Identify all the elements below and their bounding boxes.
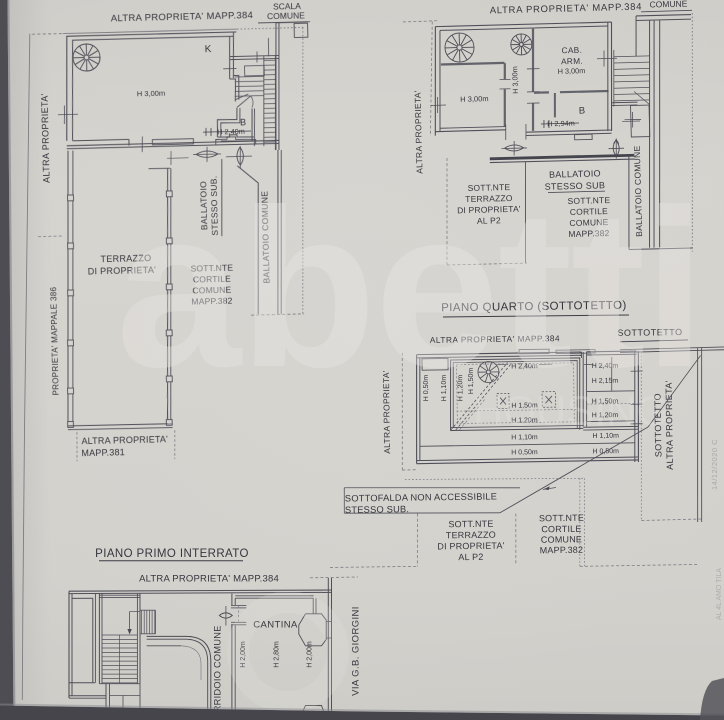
svg-text:ALTRA PROPRIETA': ALTRA PROPRIETA' [81,434,168,446]
svg-text:CAB.: CAB. [561,45,582,56]
svg-text:MAPP.382: MAPP.382 [540,545,584,556]
svg-text:14/12/2020 C: 14/12/2020 C [710,439,719,490]
svg-text:COMUNE: COMUNE [267,11,305,22]
svg-text:SOTT.NTE: SOTT.NTE [448,519,493,530]
svg-text:AL P2: AL P2 [458,552,483,562]
svg-text:ALTRA PROPRIETA' MAPP.384: ALTRA PROPRIETA' MAPP.384 [139,574,279,585]
svg-text:H 1,10m: H 1,10m [511,434,538,441]
svg-text:PIANO PRIMO INTERRATO: PIANO PRIMO INTERRATO [95,548,249,560]
svg-text:H 3,00m: H 3,00m [137,89,166,99]
svg-text:MAPP.381: MAPP.381 [81,447,125,458]
svg-text:COMUNE: COMUNE [649,0,687,9]
svg-text:CORTILE: CORTILE [541,524,581,535]
svg-text:H 3,00m: H 3,00m [510,66,520,94]
svg-text:COMUNE: COMUNE [541,534,582,545]
svg-text:H 3,00m: H 3,00m [558,66,586,76]
svg-text:ALTRA PROPRIETA': ALTRA PROPRIETA' [39,93,51,183]
svg-text:DI PROPRIETA': DI PROPRIETA' [437,541,504,552]
svg-text:SOTTOFALDA NON ACCESSIBILE: SOTTOFALDA NON ACCESSIBILE [345,491,497,503]
svg-text:abetti: abetti [116,162,704,414]
svg-text:H 2,80m: H 2,80m [273,641,280,668]
svg-text:H 2,00m: H 2,00m [307,641,314,668]
svg-text:VIA G.B. GIORGINI: VIA G.B. GIORGINI [351,606,362,696]
svg-text:K: K [204,44,211,55]
svg-text:SOTT.NTE: SOTT.NTE [539,513,584,524]
svg-text:CORRIDOIO COMUNE: CORRIDOIO COMUNE [213,625,223,720]
svg-text:ARM.: ARM. [561,56,583,67]
svg-text:TERRAZZO: TERRAZZO [446,530,496,541]
svg-text:H 0,50m: H 0,50m [511,449,538,456]
svg-text:B: B [579,105,586,116]
svg-text:HOUSING: HOUSING [473,387,669,434]
svg-text:AL 4L AMO TILA: AL 4L AMO TILA [716,568,723,620]
svg-text:STESSO SUB.: STESSO SUB. [345,504,409,515]
svg-text:H 3,00m: H 3,00m [460,94,489,104]
